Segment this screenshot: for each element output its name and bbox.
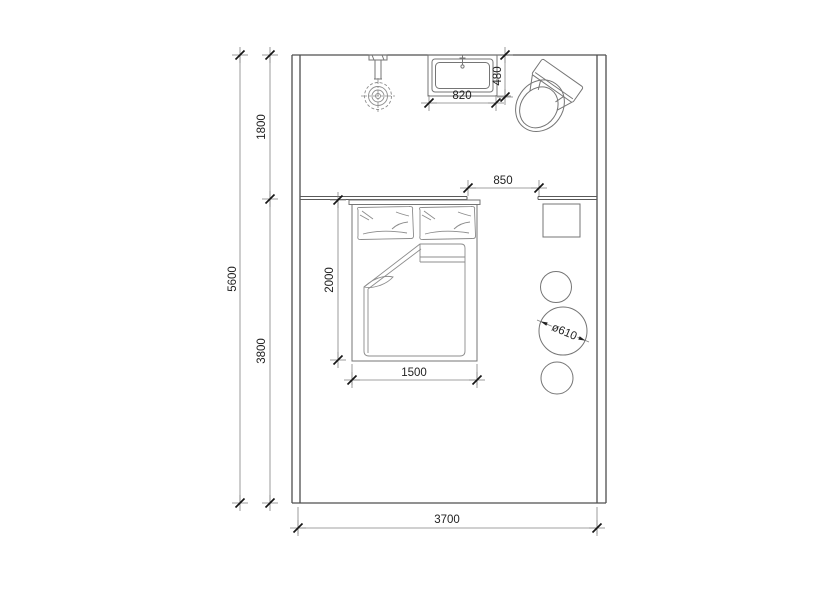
partition-wall	[300, 197, 597, 200]
floor-plan-page: 5600 1800 3800 3700 850 820 480	[0, 0, 837, 592]
round-stool-bottom	[541, 362, 573, 394]
round-stool-top	[541, 272, 572, 303]
duvet	[364, 244, 465, 356]
dim-label-3800: 3800	[256, 338, 268, 364]
floor-plan-canvas: 5600 1800 3800 3700 850 820 480	[0, 0, 837, 592]
dim-label-1500: 1500	[401, 367, 427, 379]
dim-label-2000: 2000	[324, 267, 336, 293]
dim-bed-width: 1500	[344, 364, 485, 388]
dim-label-850: 850	[493, 175, 512, 187]
dim-bed-length: 2000	[324, 192, 346, 368]
dim-label-610: ø610	[550, 322, 579, 343]
dim-room-width: 3700	[290, 507, 605, 536]
dim-label-1800: 1800	[256, 114, 268, 140]
dim-label-480: 480	[492, 66, 504, 85]
dim-basin-width: 820	[421, 90, 504, 111]
dim-table-diameter: ø610	[537, 320, 589, 343]
bed-headboard	[349, 200, 480, 205]
toilet	[504, 59, 583, 143]
shower-fixture	[361, 55, 395, 113]
dim-label-3700: 3700	[434, 514, 460, 526]
dim-opening: 850	[460, 175, 547, 196]
fixture-mount	[369, 55, 387, 60]
bedside-table	[543, 204, 580, 237]
dim-total-height: 5600	[227, 47, 248, 511]
basin-bowl	[436, 63, 490, 89]
bed	[349, 200, 480, 361]
pillow	[420, 206, 476, 239]
dim-zone-heights: 1800 3800	[256, 47, 278, 511]
dim-label-5600: 5600	[227, 266, 239, 292]
bed-frame	[352, 205, 477, 362]
pillow	[358, 206, 414, 239]
room-walls	[292, 55, 606, 503]
dim-label-820: 820	[452, 90, 471, 102]
